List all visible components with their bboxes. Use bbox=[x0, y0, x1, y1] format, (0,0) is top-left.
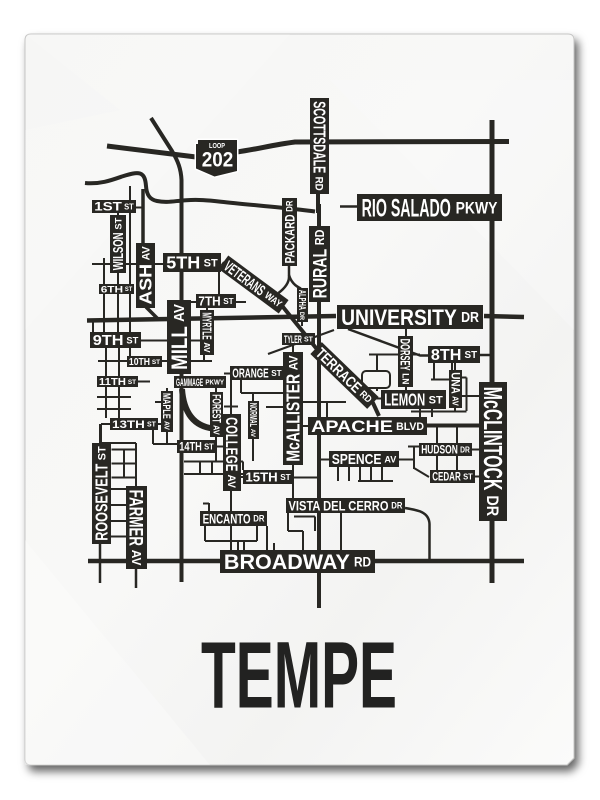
svg-text:SCOTTSDALE: SCOTTSDALE bbox=[309, 101, 329, 173]
svg-text:DR: DR bbox=[460, 445, 470, 454]
svg-text:NORMAL: NORMAL bbox=[247, 403, 258, 427]
svg-text:ST: ST bbox=[204, 442, 214, 451]
svg-text:BLVD: BLVD bbox=[396, 421, 424, 433]
svg-text:PACKARD: PACKARD bbox=[282, 214, 297, 263]
svg-text:ST: ST bbox=[463, 472, 473, 481]
svg-text:AV: AV bbox=[286, 355, 300, 370]
svg-text:AV: AV bbox=[202, 342, 212, 353]
svg-text:ST: ST bbox=[304, 335, 313, 344]
svg-text:LEMON: LEMON bbox=[384, 390, 425, 410]
svg-text:ST: ST bbox=[126, 336, 138, 347]
svg-text:ST: ST bbox=[204, 258, 218, 270]
svg-text:DR: DR bbox=[483, 495, 502, 516]
svg-text:202: 202 bbox=[202, 149, 234, 172]
svg-text:7TH: 7TH bbox=[198, 294, 220, 309]
svg-text:13TH: 13TH bbox=[112, 419, 145, 431]
svg-text:DORSEY: DORSEY bbox=[398, 339, 413, 371]
svg-text:ST: ST bbox=[152, 359, 160, 366]
svg-text:MAPLE: MAPLE bbox=[160, 393, 172, 419]
svg-text:APACHE: APACHE bbox=[311, 417, 393, 436]
svg-text:UNIVERSITY: UNIVERSITY bbox=[341, 305, 457, 330]
svg-text:SPENCE: SPENCE bbox=[332, 452, 382, 468]
svg-text:BROADWAY: BROADWAY bbox=[224, 551, 350, 574]
svg-text:TYLER: TYLER bbox=[284, 334, 302, 346]
svg-text:ST: ST bbox=[223, 296, 234, 306]
svg-text:DR: DR bbox=[298, 312, 305, 320]
svg-text:AV: AV bbox=[129, 550, 143, 566]
svg-text:ST: ST bbox=[429, 395, 443, 407]
svg-text:9TH: 9TH bbox=[93, 333, 124, 349]
svg-text:10TH: 10TH bbox=[129, 357, 150, 368]
svg-text:McCLINTOCK: McCLINTOCK bbox=[478, 387, 506, 491]
svg-text:RD: RD bbox=[313, 230, 327, 246]
svg-text:ALPHA: ALPHA bbox=[296, 290, 307, 311]
svg-text:8TH: 8TH bbox=[431, 347, 462, 364]
svg-text:GAMMAGE: GAMMAGE bbox=[176, 377, 203, 389]
svg-text:5TH: 5TH bbox=[166, 253, 200, 273]
svg-text:WILSON: WILSON bbox=[111, 233, 127, 271]
svg-text:CEDAR: CEDAR bbox=[432, 470, 461, 484]
svg-text:11TH: 11TH bbox=[99, 377, 126, 388]
svg-text:DR: DR bbox=[391, 501, 403, 511]
svg-text:VISTA DEL CERRO: VISTA DEL CERRO bbox=[289, 498, 389, 513]
svg-text:ORANGE: ORANGE bbox=[232, 366, 269, 381]
svg-text:AV: AV bbox=[162, 421, 171, 430]
svg-text:DR: DR bbox=[461, 310, 479, 326]
svg-text:AV: AV bbox=[225, 475, 237, 489]
svg-text:ST: ST bbox=[271, 368, 282, 378]
svg-text:ST: ST bbox=[114, 218, 125, 230]
svg-text:HUDSON: HUDSON bbox=[421, 443, 458, 457]
svg-text:ASH: ASH bbox=[136, 264, 156, 305]
svg-text:RD: RD bbox=[354, 555, 371, 570]
svg-text:PKWY: PKWY bbox=[205, 378, 224, 387]
svg-text:AV: AV bbox=[451, 396, 460, 406]
svg-text:RURAL: RURAL bbox=[310, 249, 331, 299]
svg-text:ROOSEVELT: ROOSEVELT bbox=[92, 464, 112, 541]
svg-text:UNA: UNA bbox=[448, 372, 462, 394]
svg-text:DR: DR bbox=[285, 200, 295, 212]
svg-text:MYRTLE: MYRTLE bbox=[199, 312, 214, 340]
svg-text:1ST: 1ST bbox=[94, 200, 122, 214]
svg-text:TEMPE: TEMPE bbox=[201, 623, 397, 729]
svg-text:FARMER: FARMER bbox=[125, 490, 146, 547]
svg-text:LN: LN bbox=[400, 373, 410, 384]
svg-text:ST: ST bbox=[147, 420, 156, 429]
svg-text:ST: ST bbox=[128, 379, 136, 386]
svg-text:FOREST: FOREST bbox=[209, 394, 223, 423]
svg-text:ST: ST bbox=[97, 446, 109, 460]
svg-text:AV: AV bbox=[212, 425, 221, 435]
svg-text:AV: AV bbox=[249, 429, 256, 438]
svg-text:DR: DR bbox=[253, 514, 265, 524]
svg-text:ST: ST bbox=[125, 287, 133, 293]
svg-text:ST: ST bbox=[465, 350, 478, 361]
svg-text:6TH: 6TH bbox=[101, 284, 124, 294]
svg-text:PKWY: PKWY bbox=[456, 199, 498, 217]
svg-text:AV: AV bbox=[172, 304, 188, 322]
svg-text:RIO SALADO: RIO SALADO bbox=[362, 195, 451, 222]
svg-text:ST: ST bbox=[280, 472, 291, 482]
svg-text:AV: AV bbox=[141, 246, 153, 260]
svg-text:15TH: 15TH bbox=[245, 470, 277, 485]
svg-text:AV: AV bbox=[384, 455, 396, 466]
svg-text:COLLEGE: COLLEGE bbox=[222, 417, 241, 471]
svg-text:ENCANTO: ENCANTO bbox=[203, 511, 251, 526]
svg-text:McALLISTER: McALLISTER bbox=[283, 374, 304, 462]
svg-text:14TH: 14TH bbox=[179, 440, 202, 454]
svg-text:ST: ST bbox=[124, 202, 134, 211]
svg-text:RD: RD bbox=[312, 177, 324, 191]
svg-text:MILL: MILL bbox=[167, 326, 192, 370]
